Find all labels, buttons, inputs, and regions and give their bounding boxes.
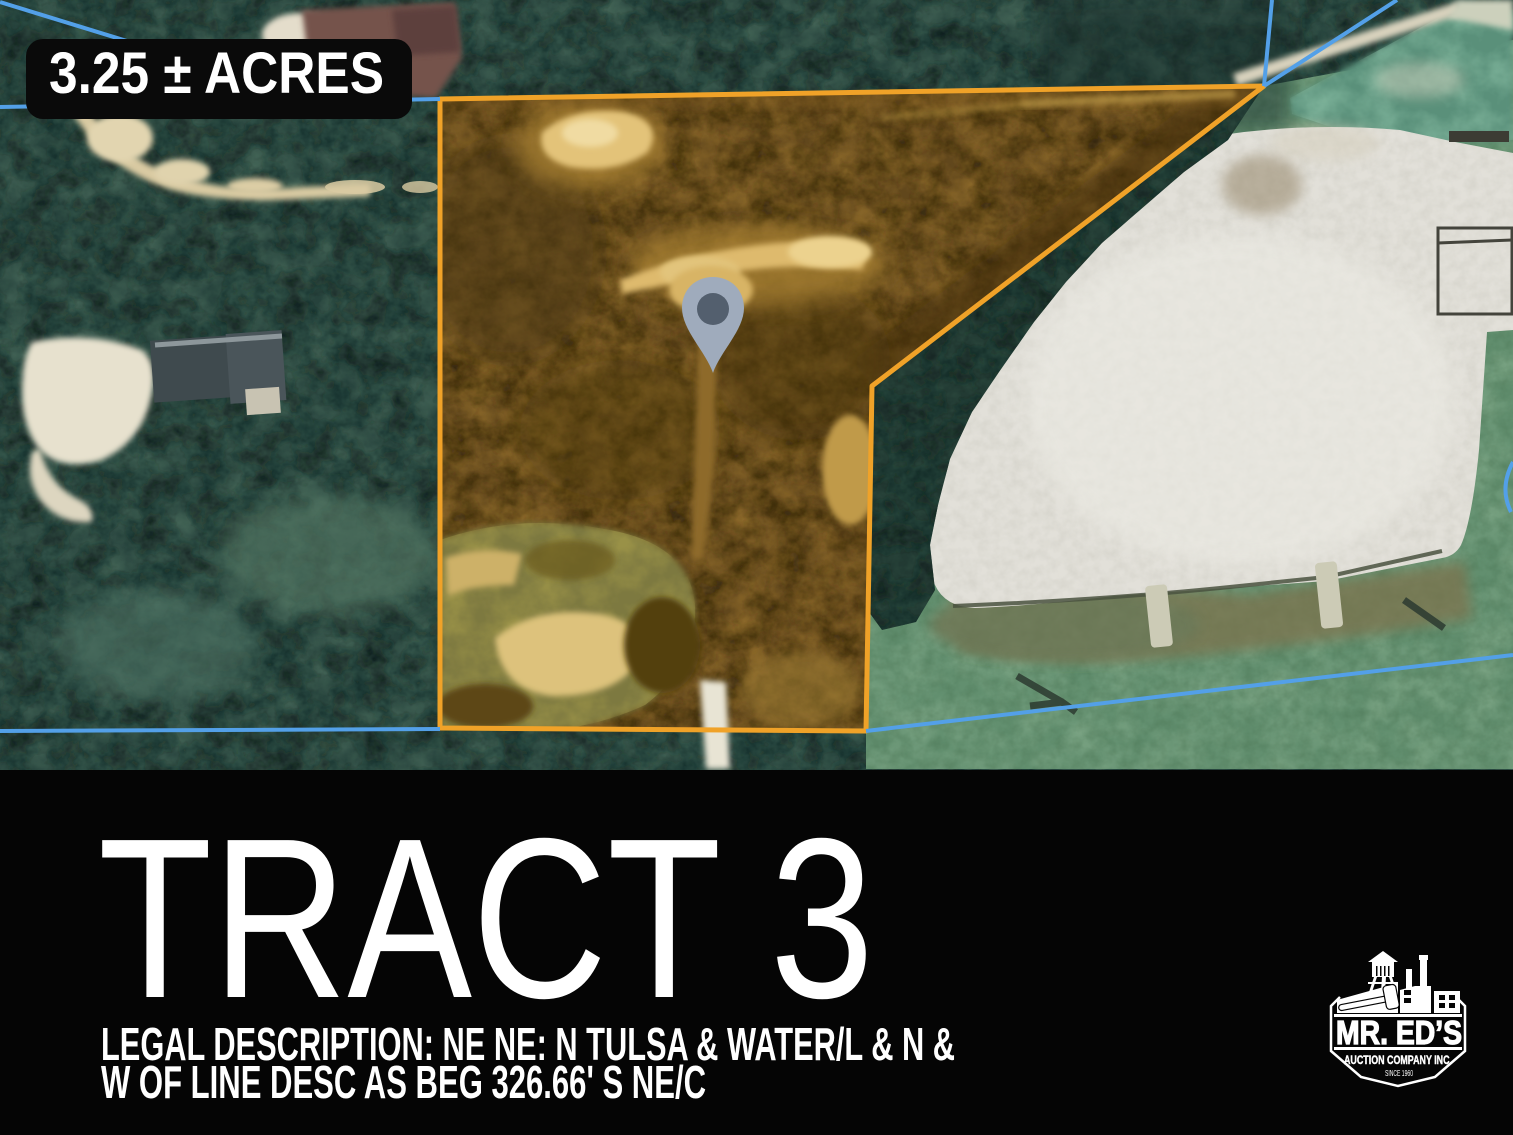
svg-text:AUCTION COMPANY INC.: AUCTION COMPANY INC. bbox=[1344, 1053, 1452, 1067]
svg-text:3.25 ± ACRES: 3.25 ± ACRES bbox=[49, 41, 384, 106]
svg-text:W OF LINE DESC AS BEG 326.66': W OF LINE DESC AS BEG 326.66' S NE/C bbox=[101, 1056, 706, 1108]
svg-text:TRACT 3: TRACT 3 bbox=[98, 792, 874, 1046]
svg-text:MR. ED’S: MR. ED’S bbox=[1336, 1014, 1462, 1051]
svg-text:SINCE 1960: SINCE 1960 bbox=[1385, 1069, 1413, 1078]
